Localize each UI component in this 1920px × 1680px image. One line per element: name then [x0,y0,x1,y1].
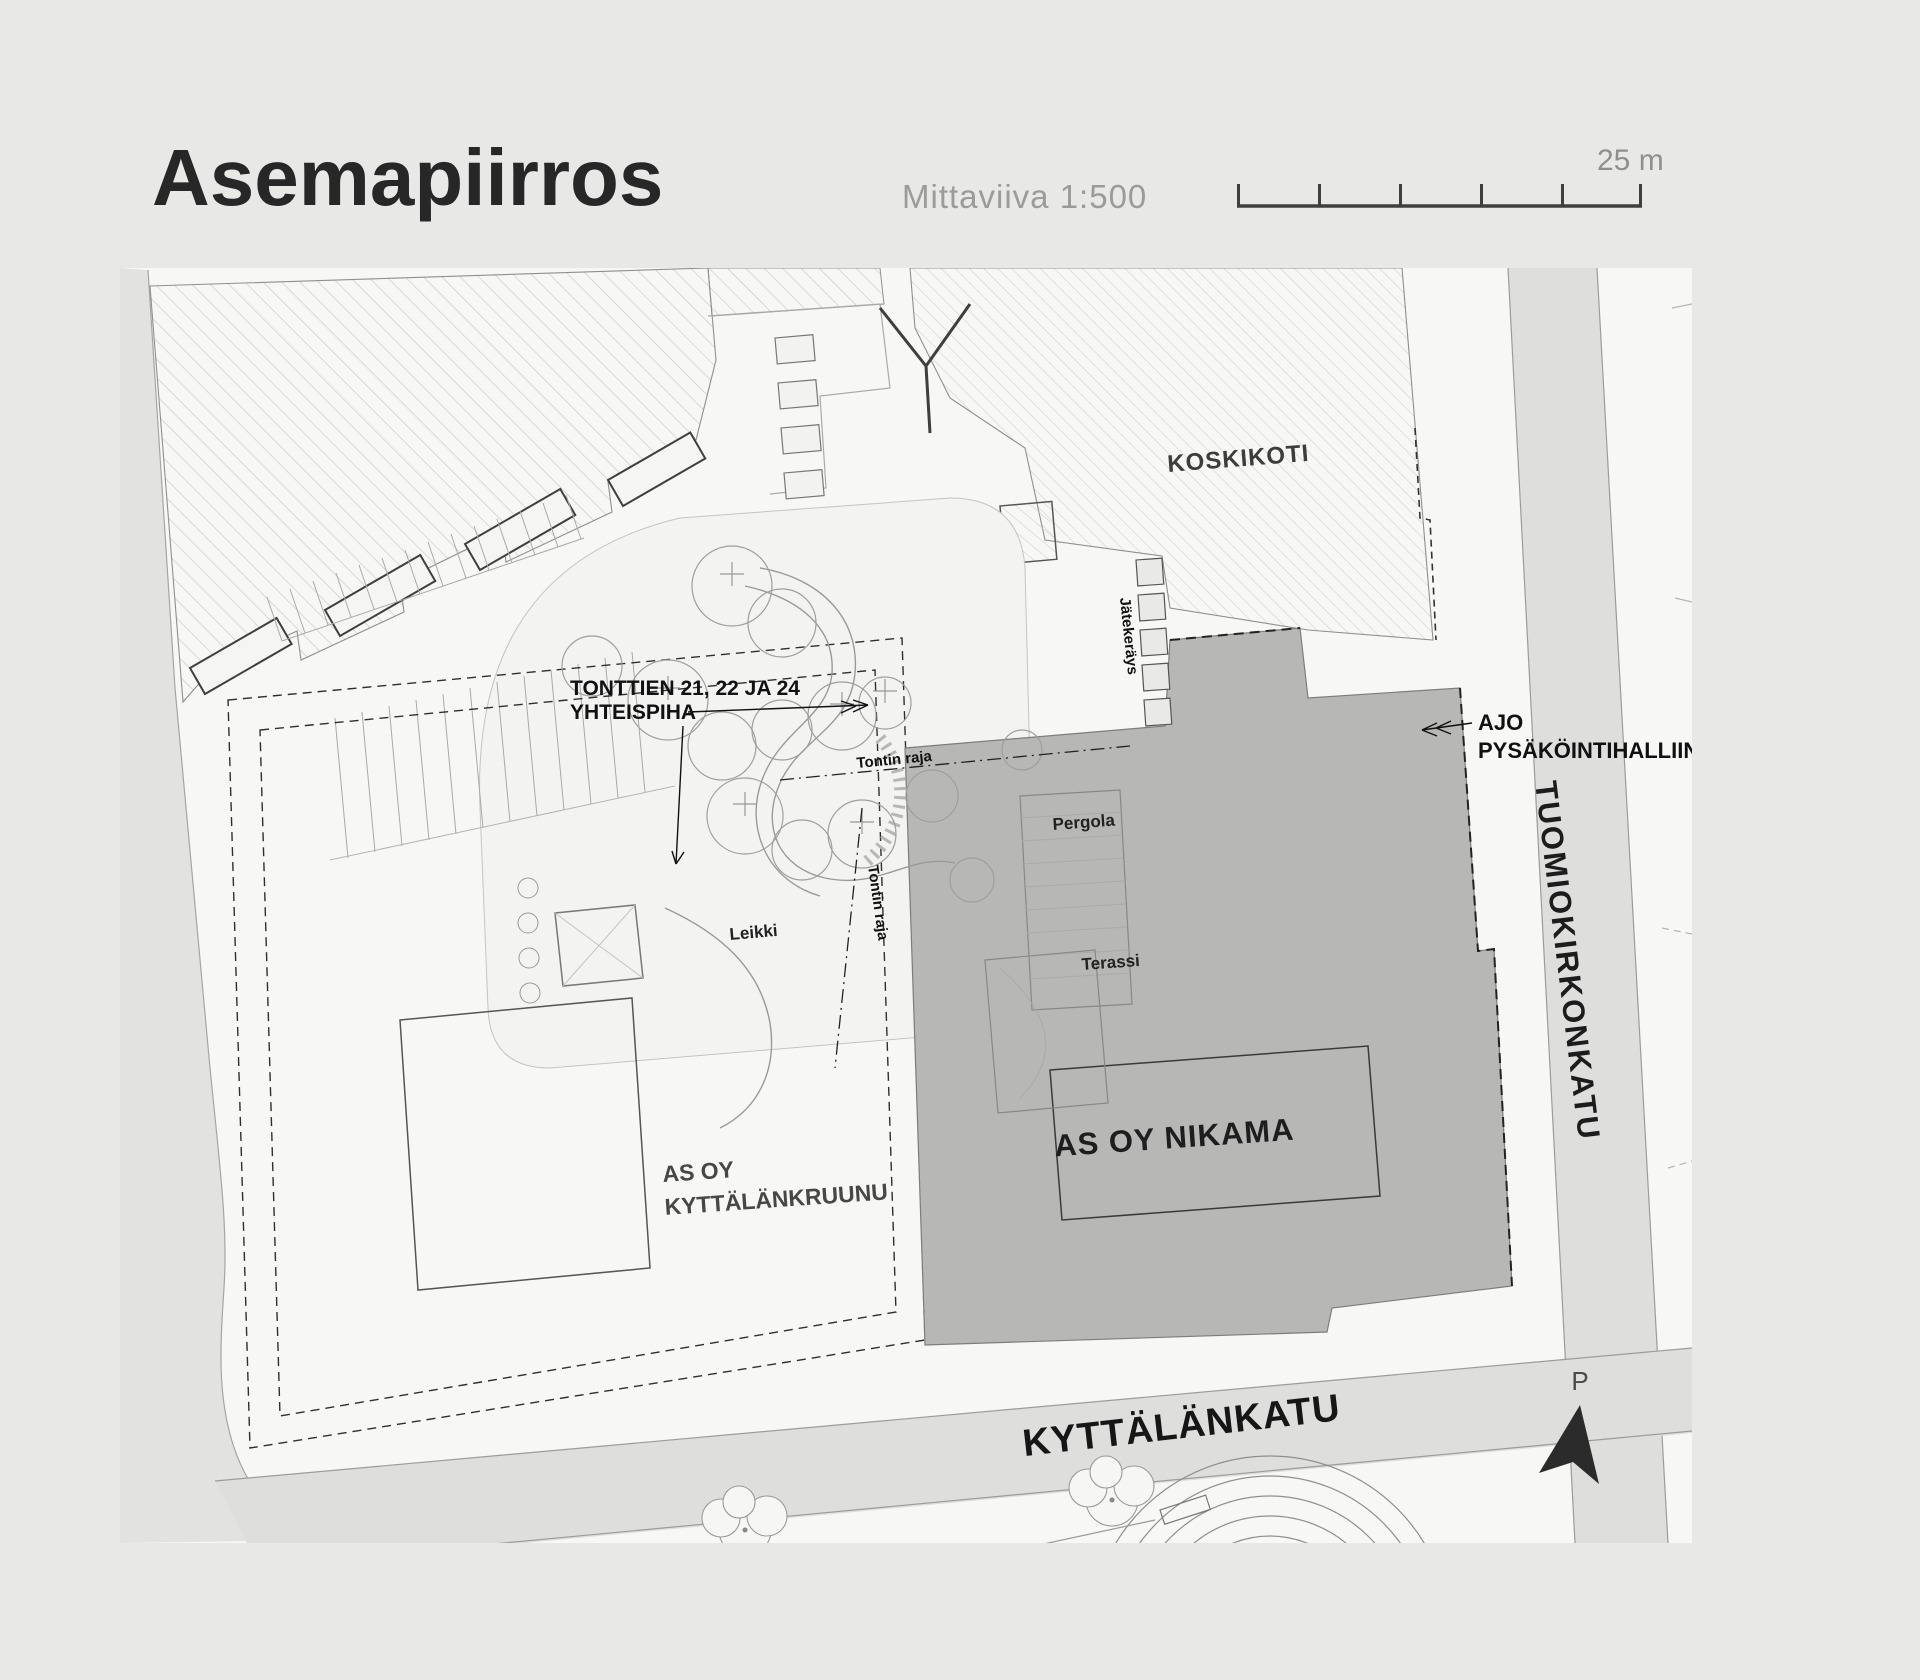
page-title: Asemapiirros [152,138,663,218]
site-plan: KOSKIKOTI [120,268,1692,1543]
scale-bar-max-label: 25 m [1597,144,1664,177]
svg-text:TONTTIEN 21, 22 JA 24: TONTTIEN 21, 22 JA 24 [570,677,800,700]
svg-text:AS OY: AS OY [662,1156,735,1187]
scale-ratio-label: Mittaviiva 1:500 [902,180,1147,213]
north-label: P [1571,1366,1588,1396]
label-terassi: Terassi [1081,951,1140,974]
svg-text:AJO: AJO [1478,710,1523,735]
svg-text:PYSÄKÖINTIHALLIIN: PYSÄKÖINTIHALLIIN [1478,738,1692,763]
scale-bar-ruler [1237,184,1642,206]
scale-bar: 25 m [1215,110,1685,220]
svg-text:YHTEISPIHA: YHTEISPIHA [570,701,696,724]
